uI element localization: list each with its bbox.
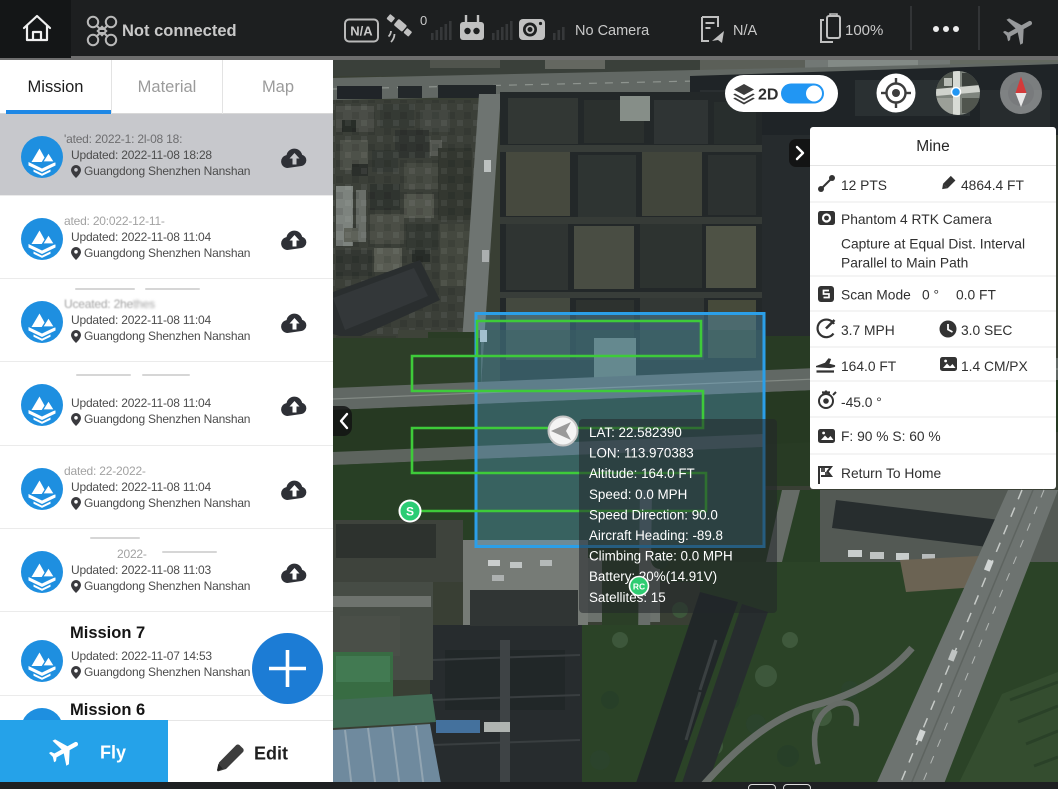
svg-text:Phantom 4 RTK Camera: Phantom 4 RTK Camera <box>841 212 992 227</box>
svg-text:Satellites: 15: Satellites: 15 <box>589 590 666 605</box>
svg-text:F: 90 % S: 60 %: F: 90 % S: 60 % <box>841 429 941 444</box>
svg-text:Not connected: Not connected <box>122 22 237 40</box>
svg-text:4864.4 FT: 4864.4 FT <box>961 178 1024 193</box>
svg-text:Scan Mode: Scan Mode <box>841 288 911 303</box>
svg-text:0: 0 <box>420 13 427 28</box>
svg-text:RC: RC <box>633 582 645 592</box>
svg-text:Battery: 20%(14.91V): Battery: 20%(14.91V) <box>589 569 717 584</box>
svg-text:Edit: Edit <box>254 744 288 764</box>
svg-text:LON: 113.970383: LON: 113.970383 <box>589 446 694 461</box>
svg-text:Climbing Rate: 0.0 MPH: Climbing Rate: 0.0 MPH <box>589 549 733 564</box>
svg-text:0 °: 0 ° <box>922 288 939 303</box>
svg-text:12 PTS: 12 PTS <box>841 178 887 193</box>
svg-text:Parallel to Main Path: Parallel to Main Path <box>841 256 968 271</box>
svg-text:N/A: N/A <box>350 24 373 39</box>
svg-text:N/A: N/A <box>733 23 758 39</box>
svg-text:100%: 100% <box>845 22 883 39</box>
svg-text:1.4 CM/PX: 1.4 CM/PX <box>961 359 1028 374</box>
svg-text:Capture at Equal Dist. Interva: Capture at Equal Dist. Interval <box>841 237 1025 252</box>
svg-text:Speed Direction: 90.0: Speed Direction: 90.0 <box>589 507 718 522</box>
svg-text:164.0 FT: 164.0 FT <box>841 359 897 374</box>
svg-text:Return To Home: Return To Home <box>841 466 942 481</box>
svg-text:S: S <box>406 505 414 519</box>
svg-text:Altitude: 164.0 FT: Altitude: 164.0 FT <box>589 466 695 481</box>
svg-text:Aircraft Heading: -89.8: Aircraft Heading: -89.8 <box>589 528 723 543</box>
svg-text:3.7 MPH: 3.7 MPH <box>841 323 895 338</box>
svg-text:LAT: 22.582390: LAT: 22.582390 <box>589 425 682 440</box>
svg-text:2D: 2D <box>758 87 778 104</box>
svg-text:0.0 FT: 0.0 FT <box>956 288 996 303</box>
svg-text:-45.0 °: -45.0 ° <box>841 395 882 410</box>
svg-text:Fly: Fly <box>100 743 126 763</box>
svg-text:Speed: 0.0 MPH: Speed: 0.0 MPH <box>589 487 687 502</box>
svg-text:3.0 SEC: 3.0 SEC <box>961 323 1012 338</box>
svg-text:No Camera: No Camera <box>575 23 650 39</box>
